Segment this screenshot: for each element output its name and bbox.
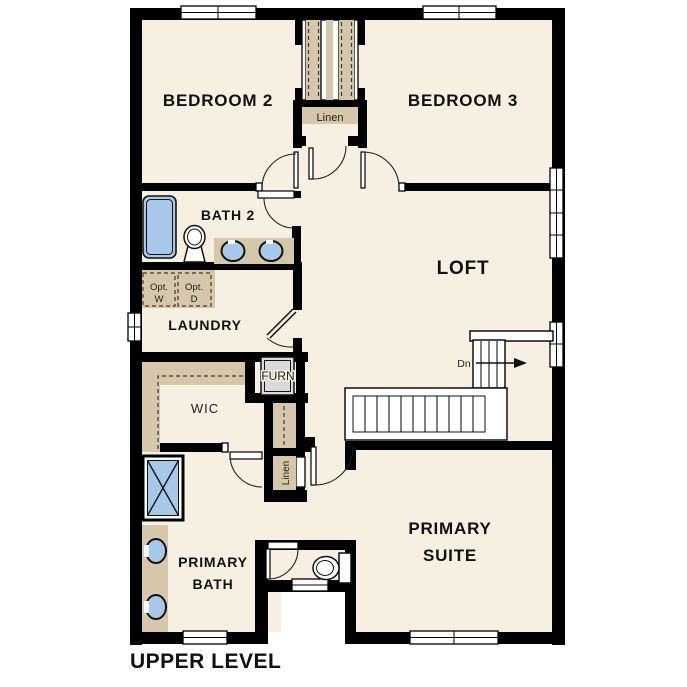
floorplan-svg: BEDROOM 2 BEDROOM 3 LOFT BATH 2 LAUNDRY … <box>0 0 687 687</box>
floorplan-page: BEDROOM 2 BEDROOM 3 LOFT BATH 2 LAUNDRY … <box>0 0 687 687</box>
bathtub <box>143 196 176 258</box>
opt-dryer-line2: D <box>191 294 198 305</box>
loft-window-lower <box>550 322 563 367</box>
lower-linen-label: Linen <box>281 461 292 485</box>
primary-bath-label-line2: BATH <box>192 576 233 592</box>
furnace-label: FURN <box>261 369 294 383</box>
primary-suite-label-line1: PRIMARY <box>408 519 491 538</box>
bedroom-closets <box>302 20 358 100</box>
opt-washer-line2: W <box>155 294 164 305</box>
laundry-window <box>128 313 141 341</box>
bedroom3-window <box>423 6 496 19</box>
bedroom2-window <box>181 6 256 19</box>
wc-window <box>292 579 328 591</box>
bedroom2-label: BEDROOM 2 <box>163 91 273 110</box>
primary-bath-label-line1: PRIMARY <box>178 554 248 570</box>
laundry-label: LAUNDRY <box>168 317 242 333</box>
opt-dryer-line1: Opt. <box>185 282 203 293</box>
primary-bath-window <box>183 631 227 644</box>
hall-linen-label: Linen <box>317 112 344 124</box>
loft-label: LOFT <box>437 258 490 279</box>
opt-washer-line1: Opt. <box>150 282 168 293</box>
bath2-toilet <box>184 226 205 263</box>
bath2-label: BATH 2 <box>201 207 255 223</box>
bedroom3-label: BEDROOM 3 <box>408 91 518 110</box>
wic-label: WIC <box>191 401 219 416</box>
stairs-down-label: Dn <box>457 358 471 370</box>
primary-suite-label-line2: SUITE <box>423 546 477 565</box>
primary-suite-window <box>410 631 498 644</box>
loft-window-upper <box>550 168 563 258</box>
shower <box>143 456 183 520</box>
page-title: UPPER LEVEL <box>130 650 281 673</box>
